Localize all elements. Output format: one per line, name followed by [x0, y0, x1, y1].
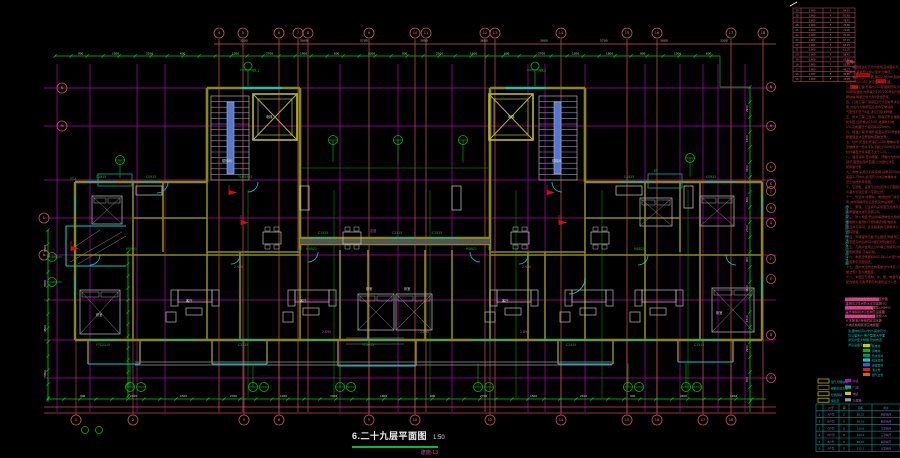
unit-area-table-cell: 2 — [843, 419, 845, 423]
floor-height-table-cell: 2.900 — [809, 29, 816, 32]
general-notes: 屋面保温详见屋面构造做法表。 — [846, 134, 889, 139]
floor-height-table-cell: F — [830, 39, 832, 42]
door-arc — [552, 182, 562, 192]
window-tags: C0915 — [706, 175, 716, 179]
floor-height-table-cell: 24 — [795, 34, 799, 37]
general-notes: 出屋面做法详见建施-16。 — [846, 209, 882, 214]
window-tags: C1515 — [694, 343, 704, 347]
dim-numbers-top: 1200 — [572, 52, 579, 56]
floor-height-table-cell: F — [830, 68, 832, 71]
shaft-legend-swatch — [863, 368, 870, 371]
survey-point — [96, 427, 103, 434]
general-notes: 装修做法表。 — [846, 164, 865, 169]
floor-height-table-cell: F — [830, 10, 832, 13]
floor-height-table-cell: 16 — [795, 73, 799, 76]
unit-area-table-cell: 5 — [819, 440, 821, 444]
sofa-group — [329, 290, 336, 306]
sofa-group — [490, 290, 497, 306]
room-labels: 电梯 — [508, 114, 515, 119]
window-tags: C2415 — [566, 343, 576, 347]
dim-numbers-right: 2700 — [745, 225, 749, 232]
unit-area-table-cell: F户型 — [828, 447, 835, 451]
room-labels: 卧室 — [716, 310, 722, 315]
general-notes: 冷凝水管就近接入专用立管。 — [846, 189, 886, 194]
meter-legend-swatch — [845, 398, 851, 401]
drawing-title: 6.二十九层平面图 — [352, 431, 427, 441]
dim-numbers-top: 600 — [180, 52, 186, 56]
axis-bubble-right-label: E — [770, 277, 772, 281]
leader-bubble — [244, 62, 252, 70]
sheet-number: 建施-13 — [352, 449, 438, 456]
floor-height-table-cell: 2.900 — [809, 14, 816, 17]
dim-numbers-top: 600 — [334, 52, 340, 56]
axis-bubble-right-label: H — [770, 206, 773, 210]
floor-height-table-cell: F — [830, 49, 832, 52]
wall-legend-swatch — [818, 385, 829, 389]
numbered-notes: 4.外墙留洞详见结构及设备图 — [846, 309, 885, 314]
shaft-legend-swatch — [863, 373, 870, 376]
sofa-group — [288, 290, 295, 306]
window-tags: YTC2115 — [96, 343, 110, 347]
unit-area-table-cell: 备注 — [883, 406, 889, 410]
window-tags: LT-2 — [540, 69, 546, 73]
door-arc — [90, 255, 100, 265]
sofa-group-table — [580, 308, 596, 315]
general-notes: 二、本层为二十九层,层高2.900m,结构楼面 — [846, 74, 900, 79]
meter-legend-label: 电表 — [853, 392, 859, 396]
axis-bubble-right-label: N — [770, 85, 773, 89]
room-labels: 楼梯间 — [222, 158, 232, 163]
floor-height-table-cell: 17 — [795, 68, 799, 71]
wall-legend-swatch — [818, 392, 829, 396]
general-notes: 气密性不低于4级,详见门窗大样图。 — [846, 109, 895, 114]
floor-height-table-cell: 70.05 — [843, 34, 850, 37]
dim-numbers-right: 3300 — [745, 165, 749, 172]
axis-bubble-top-label: 4 — [218, 31, 221, 35]
unit-area-table-cell: 户型 — [828, 406, 834, 410]
door-arc — [638, 255, 648, 265]
general-notes: 三、墙体工程:外墙为200厚钢筋砼剪力墙外贴 — [846, 84, 900, 89]
sofa-group-chair — [166, 312, 176, 322]
dim-numbers-bottom: 2700 — [230, 394, 237, 398]
axis-span-numbers: 3300 — [240, 39, 248, 43]
general-notes: 一、本图所注标高均为建筑完成面标高,以米 — [846, 64, 900, 69]
numbered-notes: 5.风道出屋面做法详见建施-15 — [846, 313, 887, 318]
axis-bubble-right-label: G — [770, 221, 773, 225]
dim-numbers-bottom: 3300 — [330, 394, 337, 398]
floor-height-table-cell: F — [830, 59, 832, 62]
sofa-group — [635, 290, 642, 306]
general-notes: 九、电梯:采用无机房客梯,载重1000kg, — [846, 169, 900, 174]
general-notes: 配合使用,如有矛盾及时通知设计人员。 — [846, 279, 900, 284]
axis-bubble-top-label: 17 — [729, 31, 733, 35]
level-labels: 2.900 — [234, 265, 243, 269]
bed-pillow — [718, 198, 732, 203]
wall-legend-label: 轻质隔墙 — [831, 393, 842, 397]
unit-area-table-cell: 6 — [819, 447, 821, 451]
room-labels: 客厅 — [300, 298, 307, 303]
dim-numbers-right: 600 — [745, 377, 749, 382]
sofa-group — [606, 290, 613, 306]
axis-span-numbers: 3300 — [720, 39, 728, 43]
cad-drawing-viewport: 9001500210060012002700150060033009002100… — [0, 0, 900, 458]
general-notes: 做法表》及标准图集。 — [846, 269, 877, 274]
sofa-group-chair — [630, 312, 640, 322]
floor-height-table-cell: 58.45 — [843, 54, 850, 57]
sofa-group — [212, 290, 219, 306]
general-notes: 砌块墙,砌筑砂浆为M5混合砂浆。 — [846, 94, 892, 99]
unit-area-table-cell: D户型 — [827, 433, 835, 437]
unit-area-table-cell: 两室两厅 — [881, 440, 892, 444]
dining-table-chair — [345, 227, 350, 231]
room-labels: 客厅 — [186, 298, 193, 303]
vertical-margin-note-2: 镜像单元相同 — [845, 300, 850, 318]
dining-table-chair — [265, 227, 270, 231]
floor-height-table-cell: 2.900 — [809, 59, 816, 62]
door-arc — [308, 252, 318, 262]
window-tags: M0921 — [306, 247, 317, 251]
dining-table-chair — [345, 245, 350, 249]
unit-area-table-cell: 118.6 — [857, 426, 865, 430]
axis-bubble-left-label: N — [61, 86, 64, 90]
unit-area-table-cell: A户型 — [828, 413, 835, 417]
floor-height-table-cell: 2.900 — [809, 49, 816, 52]
notes-heading: 说明: — [846, 59, 855, 64]
general-notes: 六、保温工程:外墙外保温采用50厚岩棉板, — [846, 129, 900, 134]
sofa-group-table — [303, 308, 319, 315]
floor-height-table-cell: 25 — [795, 29, 799, 32]
floor-height-table-cell: 15 — [795, 78, 799, 81]
unit-area-table-cell: 3 — [843, 426, 845, 430]
corridor-fill — [300, 239, 490, 244]
floor-height-table-cell: 61.35 — [843, 49, 850, 52]
general-notes: 及土建技术条件图。 — [846, 179, 874, 184]
shaft-legend-label: 弱电井 — [872, 349, 881, 353]
axis-bubble-top-label: 7 — [297, 31, 299, 35]
room-labels: 楼梯间 — [552, 158, 562, 163]
wall-legend-label: 保温层 — [831, 399, 840, 403]
sofa-group-table — [650, 308, 666, 315]
balcony-hatch — [70, 232, 122, 262]
dining-table — [591, 232, 609, 244]
floor-height-table-cell: 27 — [795, 19, 799, 22]
floor-height-table-cell: 29 — [795, 10, 799, 13]
axis-bubble-top-label: 5 — [242, 31, 244, 35]
unit-area-table-cell: 三室两厅 — [881, 433, 892, 437]
dim-numbers-bottom: 1800 — [380, 394, 387, 398]
cyan-note-block: 均以毫米计;各户型放大平面 — [848, 333, 885, 338]
dim-numbers-bottom: 900 — [80, 394, 86, 398]
unit-area-table-cell: 3 — [843, 433, 845, 437]
door-arc — [248, 182, 258, 192]
axis-bubble-top-label: 9 — [368, 31, 370, 35]
section-flag — [547, 190, 555, 195]
floor-height-table-cell: 84.55 — [843, 10, 850, 13]
general-notes: 十四、外墙留洞见各专业图纸,预留洞口待管 — [846, 234, 900, 239]
level-labels: 2.890 — [322, 330, 331, 334]
dim-numbers-top: 900 — [78, 52, 84, 56]
floor-height-table-cell: 26 — [795, 24, 799, 27]
dining-table-chair — [593, 227, 598, 231]
shaft-legend-swatch — [863, 344, 870, 347]
axis-bubble-bottom-label: 15 — [625, 418, 629, 422]
general-notes: 七、栏杆:阳台栏杆净高1100,楼梯扶手高900, — [846, 139, 900, 144]
meter-legend-swatch — [845, 392, 851, 395]
drawing-title-block: 6.二十九层平面图1:50 建施-13 — [352, 426, 482, 456]
dim-numbers-top: 1500 — [674, 52, 681, 56]
level-labels: 走道 — [370, 228, 377, 233]
dining-table-chair — [522, 245, 527, 249]
dining-table-chair — [602, 227, 607, 231]
dining-table-chair — [593, 245, 598, 249]
stair-left-handrail — [227, 102, 234, 174]
unit-area-table-cell: E户型 — [828, 440, 835, 444]
general-notes: 户型索引及面积表。 — [846, 259, 874, 264]
floor-height-table-cell: F — [830, 73, 832, 76]
dim-numbers-bottom: 600 — [430, 394, 436, 398]
room-labels: 卧室 — [96, 312, 102, 317]
bed-pillow — [82, 292, 99, 297]
window-tags: M0921 — [126, 247, 137, 251]
window-tags: C1515 — [432, 231, 442, 235]
floor-plan-canvas[interactable]: 9001500210060012002700150060033009002100… — [0, 0, 900, 458]
dim-numbers-right: 1500 — [745, 135, 749, 142]
floor-height-table-cell: 64.25 — [843, 44, 850, 47]
bed-pillow — [642, 200, 655, 205]
kitchen-counter — [616, 186, 642, 195]
floor-height-table-cell: 72.95 — [843, 29, 850, 32]
floor-height-table-cell: 2.900 — [809, 19, 816, 22]
axis-bubble-bottom-label: 1 — [75, 418, 77, 422]
window-tags: M0921 — [466, 247, 477, 251]
title-underline — [352, 446, 438, 448]
general-notes: 速度1.75m/s,井道尺寸详见电梯样本 — [846, 174, 897, 179]
shaft-legend-label: 排水管井 — [872, 359, 883, 363]
axis-bubble-top-label: 13 — [493, 31, 497, 35]
room-labels: 客厅 — [502, 298, 509, 303]
axis-bubble-top-label: 10 — [413, 31, 417, 35]
dining-table — [263, 232, 281, 244]
window-tags: C1815 — [96, 175, 106, 179]
dining-table-chair — [274, 227, 279, 231]
general-notes: 为单位,其余尺寸均以毫米为单位。 — [846, 69, 893, 74]
floor-height-table-cell: 2.900 — [809, 63, 816, 66]
floor-height-table-cell: 19 — [795, 59, 799, 62]
axis-bubble-top-label: 12 — [483, 31, 487, 35]
general-notes: 50厚保温板,内隔墙为100/200厚加气砼 — [846, 89, 900, 94]
general-notes: 十、空调板、设备平台位置详见平面图示, — [846, 184, 900, 189]
section-flag — [559, 220, 567, 225]
floor-height-table-cell: 2.900 — [809, 10, 816, 13]
dim-numbers-bottom: 1500 — [530, 394, 537, 398]
axis-span-numbers: 3600 — [480, 39, 488, 43]
floor-height-table-cell: 23 — [795, 39, 799, 42]
dim-numbers-bottom: 1500 — [180, 394, 187, 398]
dining-table-chair — [513, 227, 518, 231]
general-notes: 十七、图中未注明之构造做法均详见《工程 — [846, 264, 900, 269]
dim-numbers-top: 2100 — [146, 52, 153, 56]
unit-area-table-cell: 3 — [819, 426, 821, 430]
shaft-legend-label: 消火栓 — [872, 368, 881, 372]
axis-bubble-bottom-label: 17 — [701, 418, 705, 422]
axis-bubble-right-label: J — [770, 189, 772, 193]
dim-numbers-right: 2900 — [745, 105, 749, 112]
meter-legend-swatch — [845, 385, 851, 388]
unit-area-table-cell: C户型 — [828, 426, 835, 430]
floor-height-table-cell: 2.900 — [809, 24, 816, 27]
dim-numbers-bottom: 1200 — [730, 394, 737, 398]
dim-numbers-left: 3300 — [43, 280, 47, 287]
axis-span-numbers: 5700 — [600, 39, 608, 43]
unit-area-table-cell: 3 — [843, 447, 845, 451]
drawing-scale: 1:50 — [433, 435, 445, 441]
stair-right-handrail — [554, 102, 561, 174]
dim-numbers-top: 600 — [504, 52, 510, 56]
numbered-notes: 1.高级装修面层做法详见装修图 — [846, 296, 888, 301]
door-arc — [231, 255, 240, 264]
axis-bubble-top-label: 14 — [559, 31, 564, 35]
floor-height-table-cell: 2.900 — [809, 78, 816, 81]
general-notes: 栏杆垂直杆件净距不大于110。 — [846, 149, 889, 154]
door-arc — [569, 278, 585, 294]
general-notes: 道安装完毕后用C20细石砼封堵密实。 — [846, 239, 899, 244]
dim-numbers-top: 2700 — [538, 52, 545, 56]
axis-bubble-top-label: 11 — [424, 31, 428, 35]
floor-height-table-cell: 2.900 — [809, 44, 816, 47]
dining-table-chair — [274, 245, 279, 249]
sofa-group — [676, 290, 683, 306]
floor-height-table-cell: 18 — [795, 63, 799, 66]
axis-bubble-left-label: M — [60, 124, 63, 128]
dim-numbers-bottom: 2700 — [480, 394, 487, 398]
dim-numbers-bottom: 2400 — [680, 394, 687, 398]
shaft-legend-label: 燃气立管 — [872, 373, 883, 377]
unit-area-table-cell: 2 — [843, 413, 845, 417]
general-notes: 十一、管道井:水暖井、电井检修门详见门窗 — [846, 194, 900, 199]
axis-bubble-bottom-label: 5 — [243, 418, 245, 422]
floor-height-table-cell: 21 — [795, 49, 799, 52]
unit-area-table-cell: 间 — [843, 406, 846, 410]
axis-bubble-right-label: K — [770, 182, 773, 186]
floor-height-table-cell: F — [830, 29, 832, 32]
window-tags: TLM1521 — [237, 175, 253, 179]
window-tags: C2115 — [392, 231, 402, 235]
general-notes: 靠楼梯井一侧水平扶手超过500时高1050, — [846, 144, 900, 149]
numbered-notes: 3.阳台栏杆详见标准图集L96J401 — [846, 305, 891, 310]
sofa-group — [171, 290, 178, 306]
bed-pillow — [657, 200, 670, 205]
axis-bubble-bottom-label: 14 — [559, 418, 564, 422]
floor-height-table-cell: F — [830, 54, 832, 57]
general-notes: 楼板耐火极限的不燃材料封堵;电缆井、 — [846, 219, 900, 224]
general-notes: 十六、本层建筑面积642.58㎡,户型分布详见 — [846, 254, 900, 259]
dining-table-chair — [513, 245, 518, 249]
dim-numbers-bottom: 1200 — [280, 394, 287, 398]
dim-numbers-top: 1500 — [112, 52, 119, 56]
bed-pillow — [94, 198, 106, 203]
general-notes: 管道井与房间、走道相通的孔洞用防火 — [846, 224, 899, 229]
floor-height-table-cell: 75.85 — [843, 24, 850, 27]
dim-numbers-top: 600 — [706, 52, 712, 56]
axis-bubble-top-label: 15 — [625, 31, 629, 35]
unit-area-table-cell: 2 — [843, 440, 845, 444]
kitchen-counter — [684, 186, 693, 208]
unit-area-table-cell: 三室两厅 — [881, 426, 892, 430]
balcony-hatch — [78, 236, 126, 264]
window-tags: KT — [654, 169, 658, 173]
axis-bubble-top-label: 6 — [278, 31, 280, 35]
dim-numbers-top: 900 — [402, 52, 408, 56]
bed-pillow — [101, 292, 118, 297]
bed-pillow — [702, 198, 716, 203]
dim-numbers-top: 2700 — [266, 52, 273, 56]
axis-bubble-right-label: D — [770, 333, 773, 337]
floor-height-table-cell: F — [830, 19, 832, 22]
door-arc — [470, 252, 480, 262]
unit-area-table-cell: 4 — [819, 433, 821, 437]
unit-area-table-cell: 1 — [819, 413, 821, 417]
floor-height-table-cell: 2.900 — [809, 34, 816, 37]
dim-numbers-top: 3300 — [368, 52, 375, 56]
cyan-note-block: 注:图中标高以米计,其余尺寸 — [848, 328, 886, 333]
dim-numbers-bottom: 900 — [630, 394, 636, 398]
dining-table-chair — [522, 227, 527, 231]
dining-table-chair — [265, 245, 270, 249]
dim-numbers-top: 1800 — [606, 52, 613, 56]
numbered-notes: 7.电表箱暗装详见电施图 — [846, 322, 879, 327]
floor-height-table-cell: 20 — [795, 54, 799, 57]
unit-area-table-cell: 三室两厅 — [881, 447, 892, 451]
unit-area-table-cell: 120.4 — [857, 433, 865, 437]
unit-area-table-cell: 88.25 — [857, 413, 865, 417]
bed-pillow — [734, 290, 752, 295]
axis-bubble-bottom-label: 18 — [729, 418, 733, 422]
axis-span-numbers: 3000 — [540, 39, 548, 43]
shaft-legend-swatch — [863, 349, 870, 352]
general-notes: 四、门窗工程:门窗洞口尺寸及编号详见门窗 — [846, 99, 900, 104]
window-tags: C1815 — [624, 175, 634, 179]
wall-legend-swatch — [818, 379, 829, 383]
dim-numbers-right: 900 — [745, 257, 749, 262]
axis-bubble-bottom-label: 9 — [368, 418, 370, 422]
sofa-group-chair — [283, 312, 293, 322]
window-tags: LT-1 — [253, 69, 259, 73]
floor-height-table-cell: 2.900 — [809, 39, 816, 42]
window-tags: C1515 — [318, 231, 328, 235]
axis-bubble-bottom-label: 12 — [488, 418, 492, 422]
window-tags: C2415 — [238, 343, 248, 347]
sofa-group — [565, 290, 572, 306]
floor-height-table-cell: 2.900 — [809, 73, 816, 76]
window-tags: YT-1 — [70, 177, 77, 181]
general-notes: 防水层,四周卷边150高,地漏处找坡 — [846, 119, 894, 124]
floor-height-table-cell: 22 — [795, 44, 799, 47]
section-flag — [229, 190, 237, 195]
meter-legend-label: 水表 — [853, 379, 859, 383]
shaft-legend-swatch — [863, 354, 870, 357]
floor-height-table-cell: 28 — [795, 14, 799, 17]
unit-area-table-cell: 89.10 — [857, 419, 865, 423]
axis-span-numbers: 5700 — [360, 39, 368, 43]
axis-bubble-top-label: 18 — [761, 31, 765, 35]
floor-height-table-cell: 67.15 — [843, 39, 850, 42]
sofa-group — [531, 290, 538, 306]
dim-numbers-bottom: 2100 — [130, 394, 137, 398]
floor-height-table-cell: F — [830, 34, 832, 37]
numbered-notes: 2.厨房卫生间防水详见建施-02 — [846, 300, 887, 305]
level-labels: 2.890 — [520, 330, 529, 334]
sofa-group-table — [505, 308, 521, 315]
